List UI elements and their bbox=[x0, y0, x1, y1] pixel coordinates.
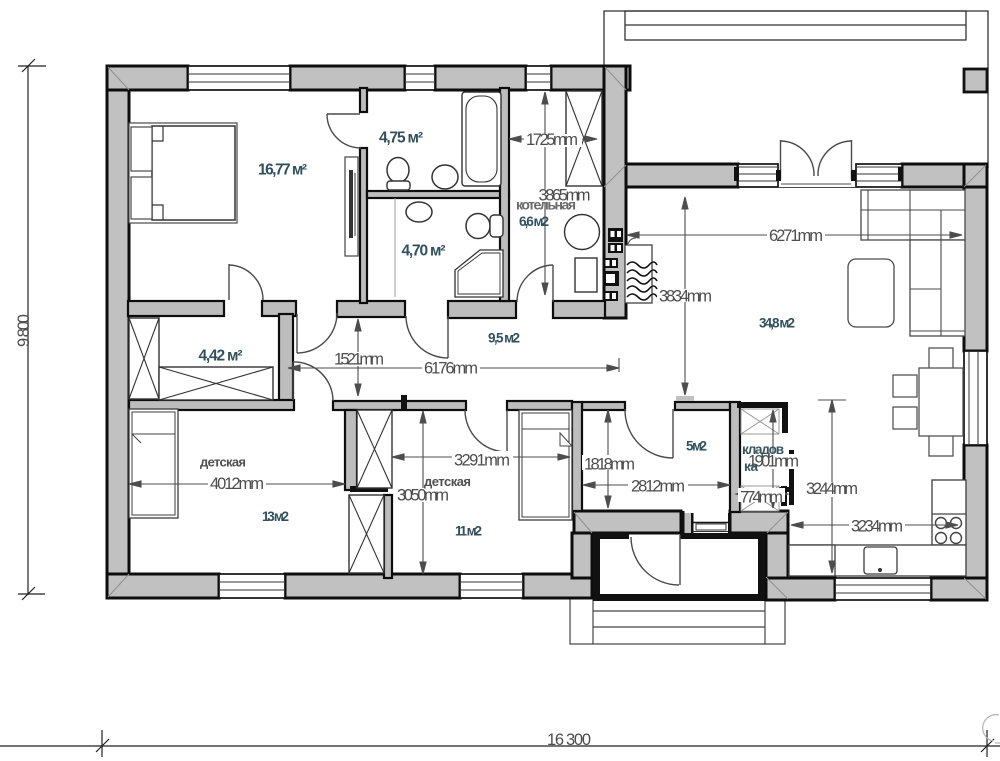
svg-text:2812mm: 2812mm bbox=[631, 478, 685, 496]
svg-text:6271mm: 6271mm bbox=[769, 227, 823, 245]
svg-text:34,8 м2: 34,8 м2 bbox=[759, 316, 795, 331]
svg-text:1725mm: 1725mm bbox=[526, 131, 578, 149]
svg-text:6,6 м2: 6,6 м2 bbox=[519, 214, 549, 229]
svg-text:кладов: кладов bbox=[742, 442, 784, 457]
svg-text:774mm: 774mm bbox=[740, 489, 783, 507]
svg-text:3234mm: 3234mm bbox=[851, 518, 903, 536]
svg-text:3244mm: 3244mm bbox=[806, 480, 858, 498]
svg-text:детская: детская bbox=[200, 455, 246, 470]
svg-text:16,77 м²: 16,77 м² bbox=[258, 162, 307, 179]
svg-text:4,75 м²: 4,75 м² bbox=[379, 130, 423, 147]
svg-text:16 300: 16 300 bbox=[547, 731, 591, 749]
svg-text:детская: детская bbox=[424, 474, 471, 489]
svg-text:9,5 м2: 9,5 м2 bbox=[488, 331, 520, 346]
svg-text:6176mm: 6176mm bbox=[424, 360, 478, 378]
svg-text:4,70 м²: 4,70 м² bbox=[402, 243, 446, 260]
svg-text:9 800: 9 800 bbox=[15, 314, 33, 347]
svg-text:13 м2: 13 м2 bbox=[262, 509, 289, 524]
svg-text:1521mm: 1521mm bbox=[334, 351, 384, 369]
svg-text:4012mm: 4012mm bbox=[210, 475, 264, 493]
svg-text:3834mm: 3834mm bbox=[659, 288, 712, 306]
svg-text:5 м2: 5 м2 bbox=[686, 439, 707, 454]
svg-text:котельная: котельная bbox=[516, 197, 576, 213]
svg-text:3291mm: 3291mm bbox=[454, 452, 510, 470]
svg-text:4,42 м²: 4,42 м² bbox=[199, 348, 243, 365]
svg-text:ка: ка bbox=[744, 459, 758, 474]
svg-text:3050mm: 3050mm bbox=[397, 487, 449, 505]
svg-text:11 м2: 11 м2 bbox=[455, 524, 482, 539]
svg-text:1818mm: 1818mm bbox=[584, 456, 635, 474]
